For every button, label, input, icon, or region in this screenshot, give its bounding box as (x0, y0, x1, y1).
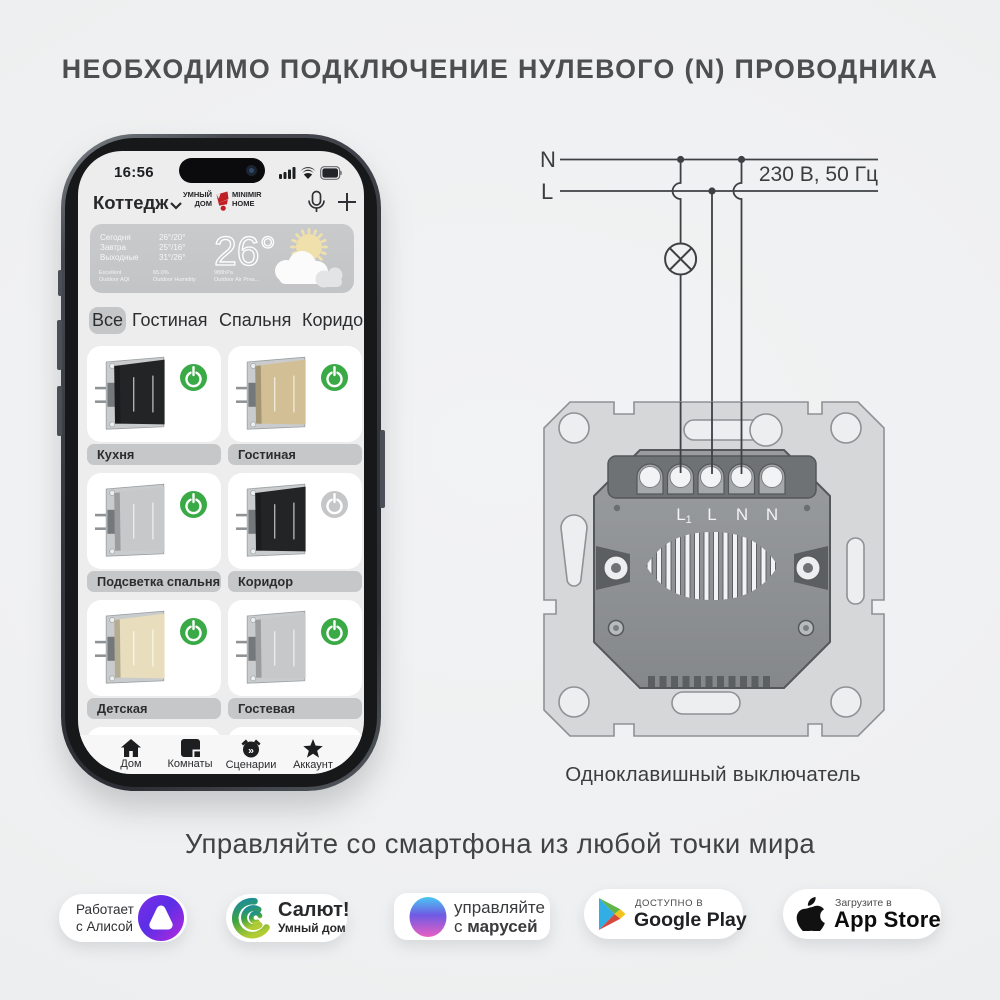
svg-text:N: N (540, 147, 556, 172)
svg-text:N: N (736, 505, 748, 524)
svg-text:N: N (766, 505, 778, 524)
svg-text:L: L (541, 179, 553, 204)
svg-text:L: L (707, 505, 716, 524)
svg-text:»: » (248, 745, 254, 757)
svg-text:230 В, 50 Гц: 230 В, 50 Гц (759, 163, 878, 186)
